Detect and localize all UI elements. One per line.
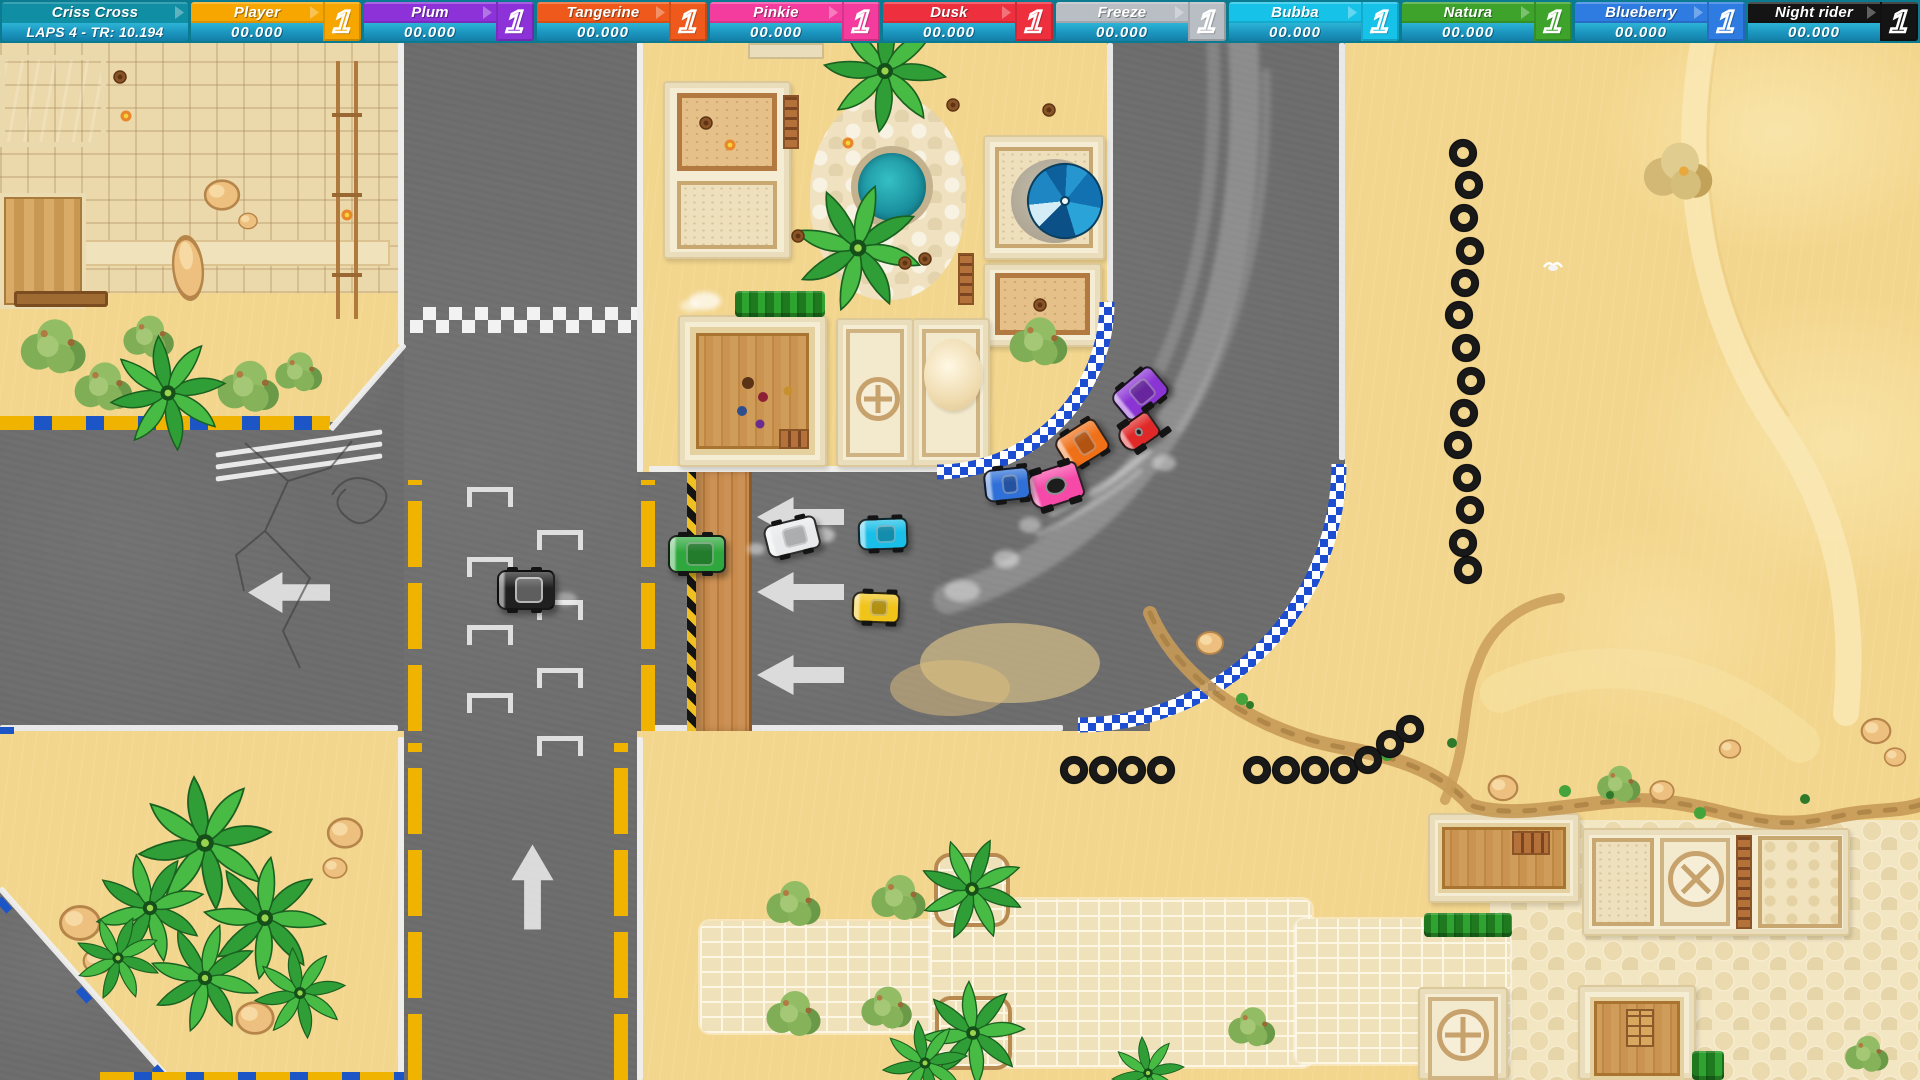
chevron-right-icon — [483, 6, 492, 19]
chevron-right-icon — [1521, 6, 1530, 19]
rank-badge: 1 — [323, 2, 361, 41]
player-time: 00.000 — [923, 24, 975, 41]
track-name: Criss Cross — [52, 4, 138, 21]
car-roof — [686, 542, 714, 566]
chevron-right-icon — [1348, 6, 1357, 19]
player-name: Dusk — [930, 4, 967, 21]
chevron-right-icon — [656, 6, 665, 19]
player-panel-plum: Plum 00.000 1 — [364, 2, 534, 41]
player-time: 00.000 — [1096, 24, 1148, 41]
car-cockpit — [1043, 474, 1069, 498]
player-name: Night rider — [1775, 4, 1853, 21]
track-info-panel: Criss Cross LAPS 4 - TR: 10.194 — [2, 2, 188, 41]
lap-info: LAPS 4 - TR: 10.194 — [26, 24, 163, 40]
rank-badge: 1 — [1188, 2, 1226, 41]
vegetation — [21, 43, 1889, 1080]
map-decorations — [0, 43, 1920, 1080]
chevron-right-icon — [310, 6, 319, 19]
rank-badge: 1 — [1880, 2, 1918, 41]
car-roof — [781, 524, 809, 549]
player-panel-player: Player 00.000 1 — [191, 2, 361, 41]
sand-stain — [890, 660, 1010, 716]
tire-barrier-column — [1445, 140, 1485, 584]
player-time: 00.000 — [1788, 24, 1840, 41]
player-panel-freeze: Freeze 00.000 1 — [1056, 2, 1226, 41]
player-panel-night-rider: Night rider 00.000 1 — [1748, 2, 1918, 41]
player-time: 00.000 — [404, 24, 456, 41]
car-roof — [1127, 377, 1158, 408]
player-panel-pinkie: Pinkie 00.000 1 — [710, 2, 880, 41]
player-name: Bubba — [1271, 4, 1319, 21]
player-name: Pinkie — [753, 4, 798, 21]
player-name: Freeze — [1098, 4, 1147, 21]
car-roof — [876, 525, 897, 544]
hud-bar: Criss Cross LAPS 4 - TR: 10.194 Player 0… — [0, 0, 1920, 43]
track-name-row: Criss Cross — [2, 2, 188, 23]
race-map — [0, 43, 1920, 1080]
player-time: 00.000 — [750, 24, 802, 41]
car-bubba — [857, 517, 908, 551]
rank-badge: 1 — [669, 2, 707, 41]
lap-info-row: LAPS 4 - TR: 10.194 — [2, 23, 188, 41]
player-name: Plum — [411, 4, 448, 21]
player-time: 00.000 — [1269, 24, 1321, 41]
player-time: 00.000 — [1442, 24, 1494, 41]
player-time: 00.000 — [1615, 24, 1667, 41]
rank-badge: 1 — [1015, 2, 1053, 41]
player-time: 00.000 — [231, 24, 283, 41]
car-natura — [668, 535, 726, 573]
seagull — [1544, 263, 1562, 271]
rank-badge: 1 — [496, 2, 534, 41]
player-panel-natura: Natura 00.000 1 — [1402, 2, 1572, 41]
player-name: Player — [234, 4, 280, 21]
car-roof — [515, 577, 543, 603]
chevron-right-icon — [1175, 6, 1184, 19]
chevron-right-icon — [1002, 6, 1011, 19]
car-roof — [1071, 428, 1098, 457]
game-screen: Criss Cross LAPS 4 - TR: 10.194 Player 0… — [0, 0, 1920, 1080]
page: { "hud": { "track": { "name": "Criss Cro… — [0, 0, 1920, 1080]
car-player — [851, 591, 900, 624]
rank-badge: 1 — [1707, 2, 1745, 41]
player-name: Tangerine — [567, 4, 640, 21]
car-roof — [1001, 474, 1019, 495]
rank-badge: 1 — [1361, 2, 1399, 41]
player-panel-blueberry: Blueberry 00.000 1 — [1575, 2, 1745, 41]
player-time: 00.000 — [577, 24, 629, 41]
player-name: Blueberry — [1605, 4, 1677, 21]
rank-badge: 1 — [842, 2, 880, 41]
player-panel-bubba: Bubba 00.000 1 — [1229, 2, 1399, 41]
chevron-right-icon — [175, 6, 184, 19]
chevron-right-icon — [1867, 6, 1876, 19]
player-panel-dusk: Dusk 00.000 1 — [883, 2, 1053, 41]
car-blueberry — [982, 466, 1031, 504]
car-roof — [870, 599, 889, 617]
chevron-right-icon — [1694, 6, 1703, 19]
car-night-rider — [497, 570, 555, 610]
player-name: Natura — [1444, 4, 1493, 21]
car-cockpit — [1133, 426, 1145, 438]
asphalt-cracks — [236, 441, 386, 668]
rank-badge: 1 — [1534, 2, 1572, 41]
dirt-trail — [1150, 598, 1920, 823]
player-panel-tangerine: Tangerine 00.000 1 — [537, 2, 707, 41]
chevron-right-icon — [829, 6, 838, 19]
